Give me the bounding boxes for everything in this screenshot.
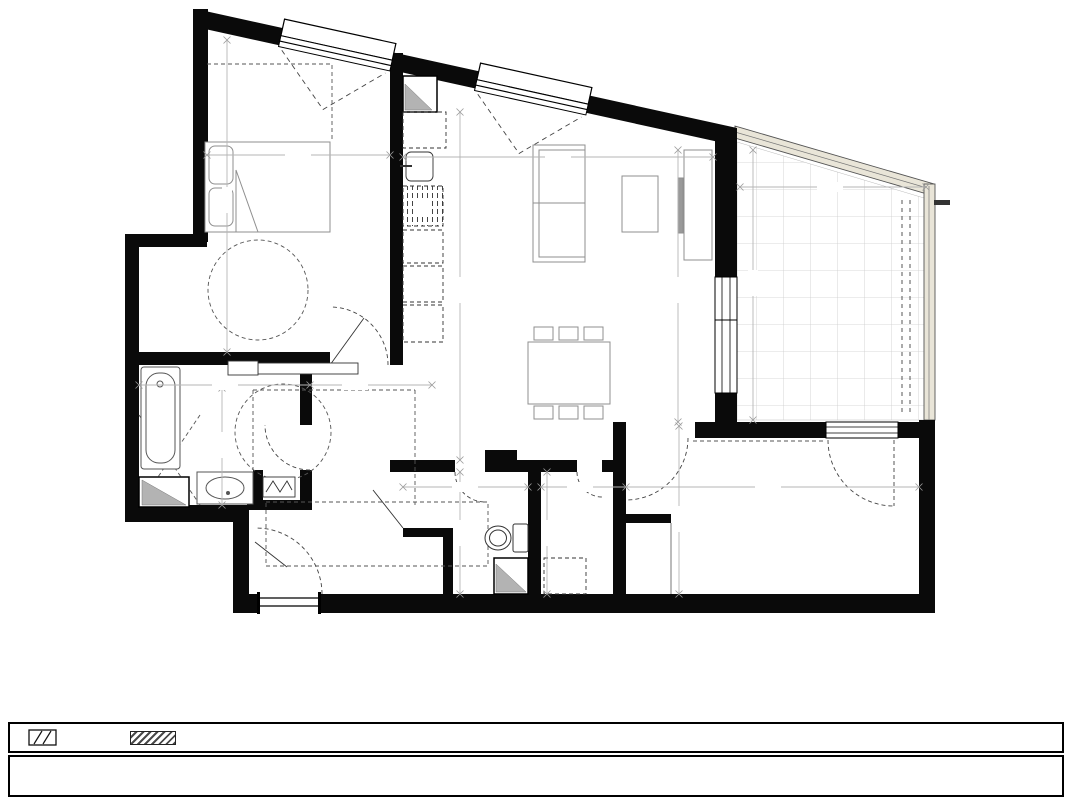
- electrical-panel: [263, 477, 295, 497]
- nota-box: [8, 755, 1064, 797]
- legend-box: [8, 722, 1064, 753]
- window-chambre2: [826, 422, 898, 506]
- towel-radiator: [228, 361, 358, 375]
- soffite-symbol: [28, 728, 58, 747]
- toilet: [485, 524, 528, 552]
- cloison-demontable-symbol: [130, 731, 176, 745]
- window-chambre1: [267, 19, 396, 122]
- coffee-table: [622, 176, 658, 232]
- bathtub: [141, 367, 180, 469]
- terrasse-handle: [934, 200, 950, 205]
- technical-shaft-top: [403, 76, 437, 112]
- window-terrasse-left: [715, 277, 737, 393]
- terrasse-area: [735, 126, 950, 420]
- cloison-legend: [130, 731, 186, 745]
- equipment-tags: [417, 200, 428, 216]
- floor-plan-drawing: [0, 0, 1073, 660]
- technical-shaft-sdb: [139, 477, 189, 507]
- tv-unit: [678, 150, 712, 260]
- floor-plan-page: [0, 0, 1073, 800]
- terrasse-glazing-right: [924, 184, 935, 420]
- kitchen-cabinets: [400, 112, 446, 342]
- sofa: [533, 145, 585, 262]
- washer-buanderie: [544, 558, 586, 594]
- dining-table: [528, 327, 610, 419]
- technical-shaft-wc: [494, 558, 528, 594]
- washbasin: [197, 472, 253, 504]
